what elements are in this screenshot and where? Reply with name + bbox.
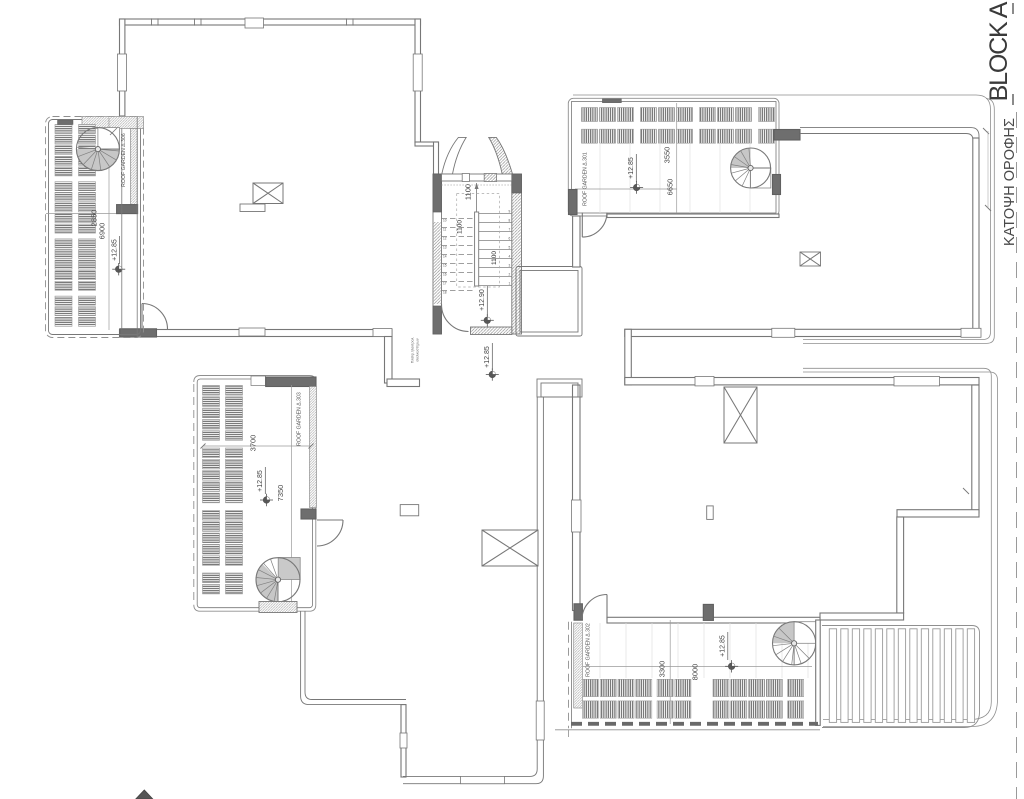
svg-text:+12.85: +12.85	[112, 239, 119, 261]
svg-text:7350: 7350	[276, 485, 285, 502]
svg-text:2: 2	[509, 273, 511, 277]
svg-text:3700: 3700	[249, 435, 258, 452]
svg-text:5: 5	[509, 246, 511, 250]
svg-text:+12.85: +12.85	[257, 470, 264, 492]
svg-text:9: 9	[509, 210, 511, 214]
svg-text:ROOF GARDEN Δ.301: ROOF GARDEN Δ.301	[583, 152, 589, 206]
svg-text:+12.85: +12.85	[720, 635, 727, 657]
svg-text:1100: 1100	[456, 220, 463, 234]
svg-text:1100: 1100	[491, 251, 498, 265]
svg-text:Πλατφ.ηλεκτρολ.: Πλατφ.ηλεκτρολ.	[411, 337, 415, 364]
svg-text:14: 14	[443, 255, 447, 259]
svg-text:18: 18	[443, 291, 447, 295]
svg-text:13: 13	[443, 246, 447, 250]
svg-text:+12.90: +12.90	[479, 289, 486, 311]
svg-text:1100: 1100	[464, 184, 473, 200]
svg-text:+12.85: +12.85	[628, 157, 635, 179]
svg-text:8: 8	[509, 219, 511, 223]
svg-text:15: 15	[443, 264, 447, 268]
svg-text:6650: 6650	[666, 179, 675, 196]
svg-text:3550: 3550	[663, 147, 672, 164]
svg-text:+12.85: +12.85	[484, 346, 491, 368]
svg-text:8000: 8000	[691, 664, 700, 681]
svg-text:ROOF GARDEN Δ.302: ROOF GARDEN Δ.302	[586, 623, 592, 677]
svg-text:ΚΑΤΟΨΗ ΟΡΟΦΗΣ: ΚΑΤΟΨΗ ΟΡΟΦΗΣ	[1002, 118, 1018, 246]
svg-text:BLOCK A: BLOCK A	[985, 1, 1013, 101]
svg-text:17: 17	[443, 282, 447, 286]
svg-text:3300: 3300	[658, 661, 667, 678]
svg-text:7: 7	[509, 228, 511, 232]
svg-text:4: 4	[509, 255, 511, 259]
svg-text:ROOF GARDEN Δ.303: ROOF GARDEN Δ.303	[297, 392, 303, 446]
svg-text:11: 11	[443, 228, 447, 232]
svg-text:6900: 6900	[98, 223, 107, 240]
svg-text:3: 3	[509, 264, 511, 268]
svg-text:10: 10	[443, 219, 447, 223]
svg-text:ανελκυστηρων: ανελκυστηρων	[416, 338, 420, 362]
svg-text:16: 16	[443, 273, 447, 277]
svg-text:1: 1	[509, 282, 511, 286]
svg-text:12: 12	[443, 237, 447, 241]
svg-text:6: 6	[509, 237, 511, 241]
